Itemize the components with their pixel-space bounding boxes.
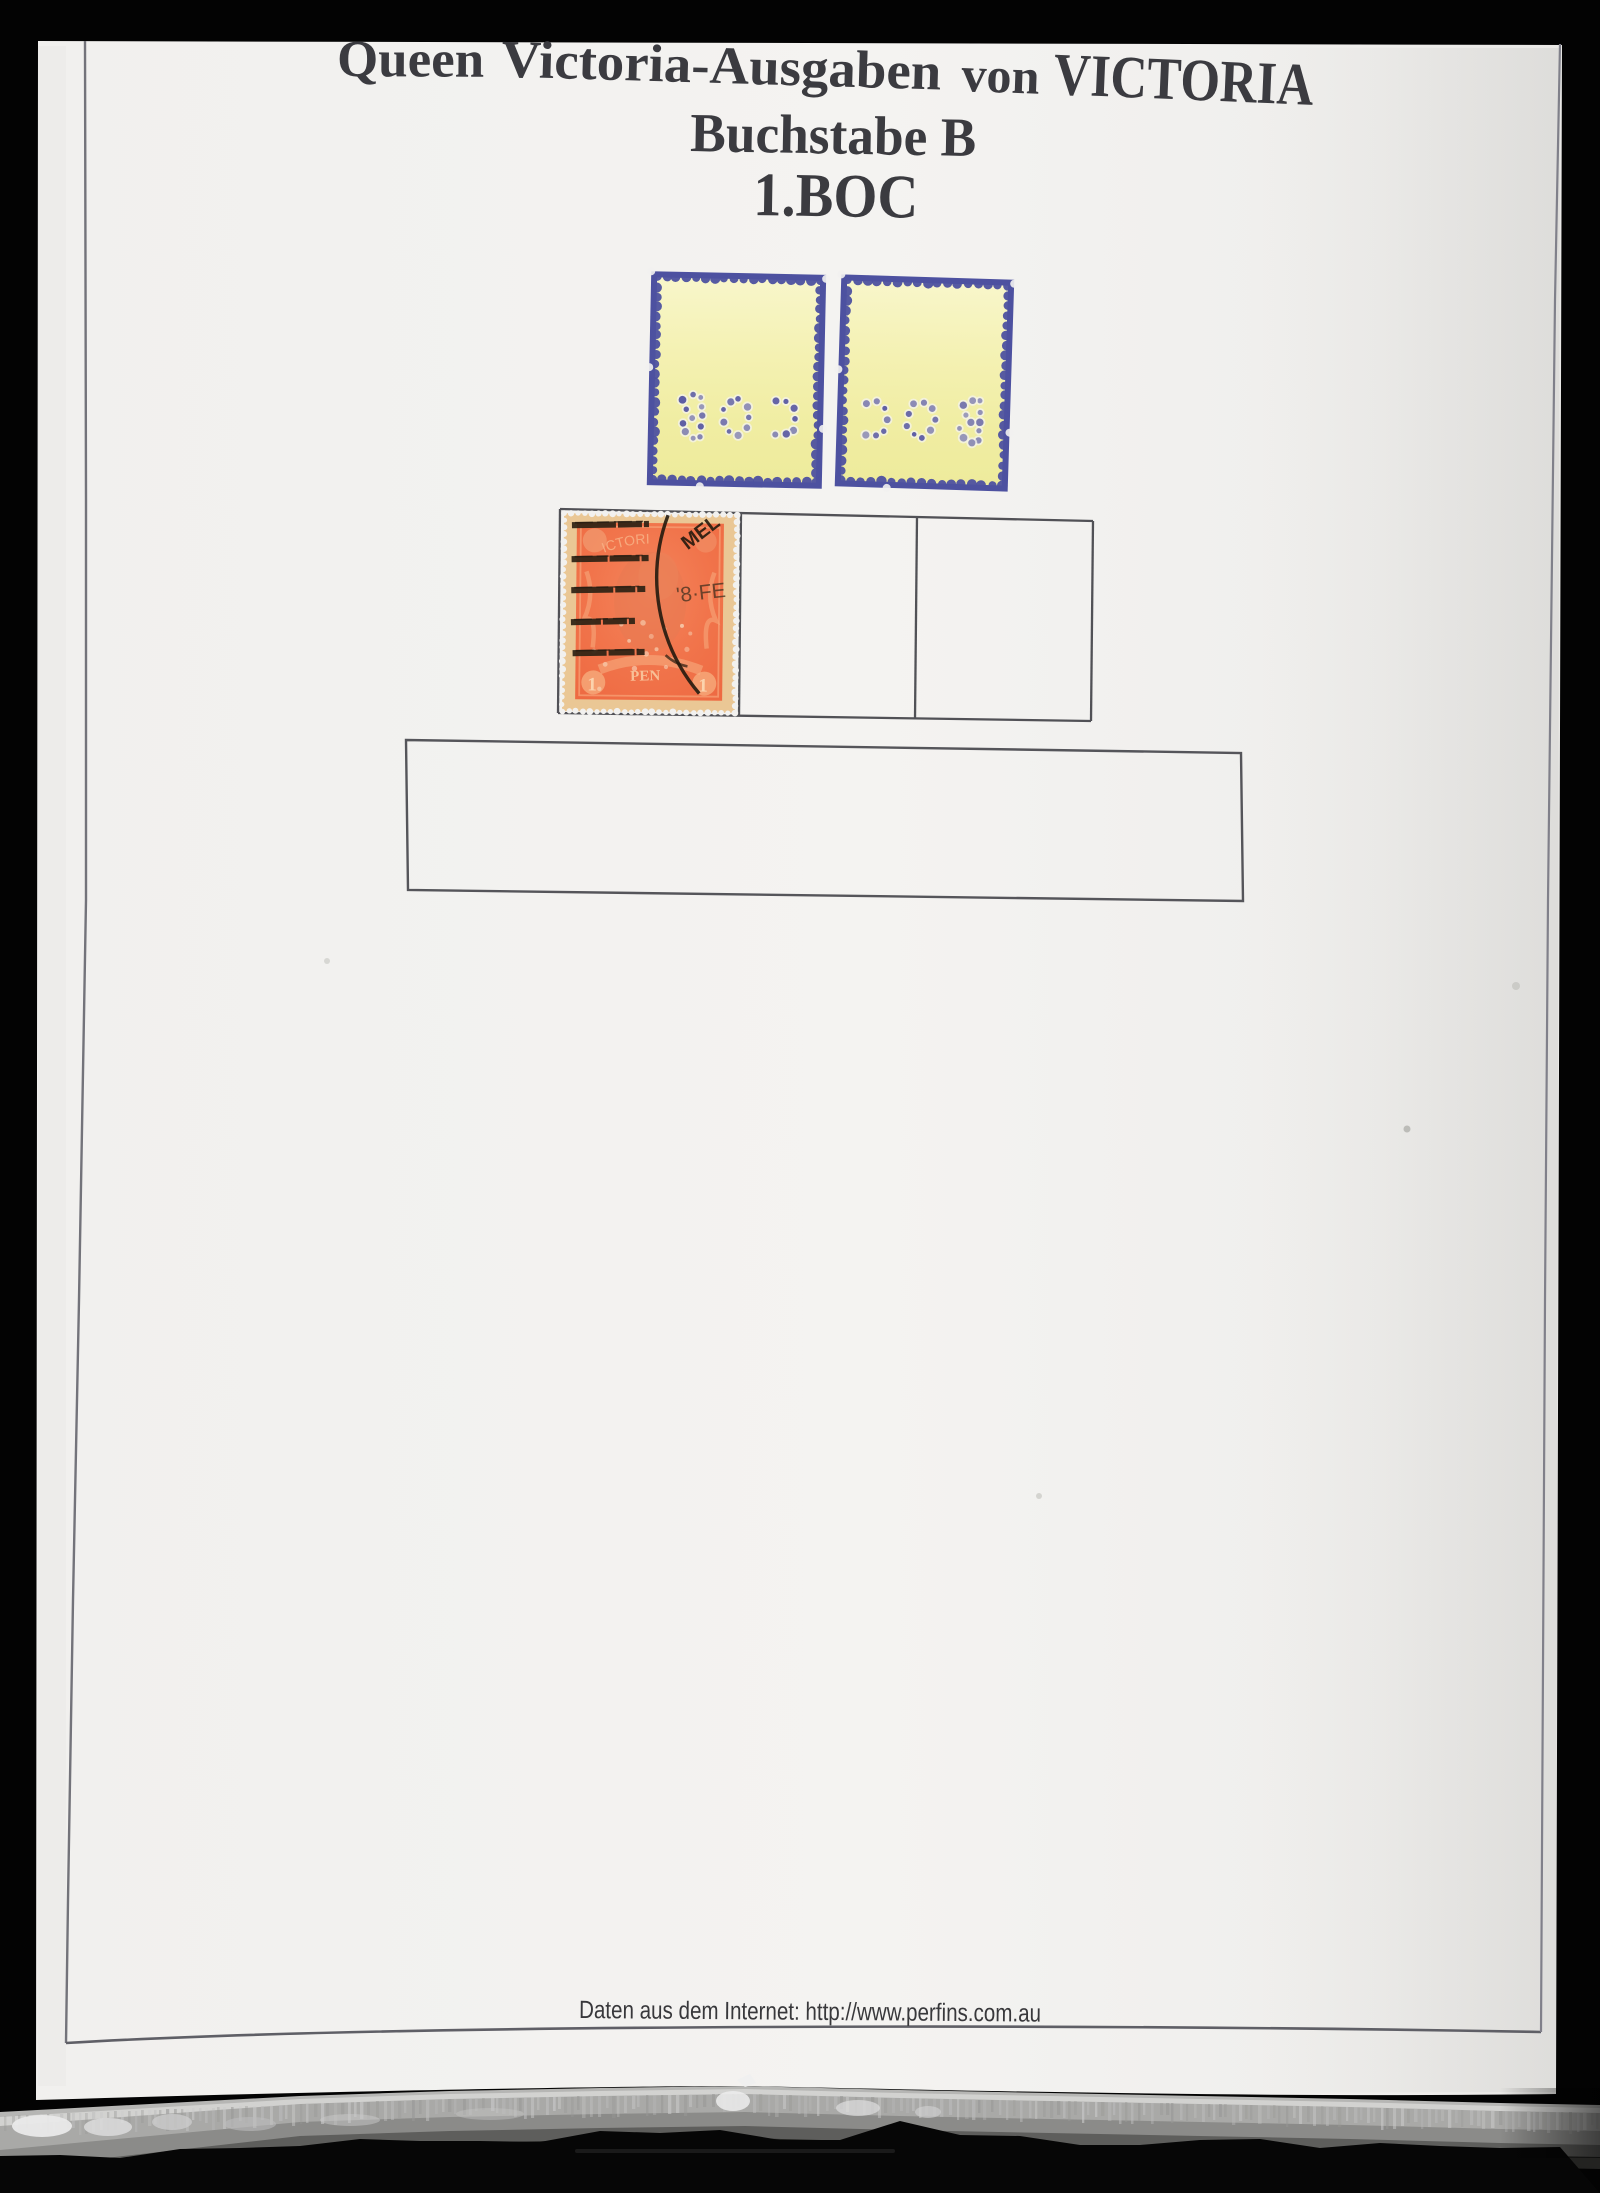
svg-text:1: 1: [587, 674, 597, 695]
svg-text:1.BOC: 1.BOC: [753, 161, 919, 232]
svg-text:Queen: Queen: [337, 31, 484, 89]
svg-text:Daten aus dem Internet: http:/: Daten aus dem Internet: http://www.perfi…: [579, 1996, 1041, 2028]
svg-text:VICTORIA: VICTORIA: [1052, 41, 1315, 118]
svg-text:von: von: [961, 46, 1041, 105]
svg-text:Buchstabe B: Buchstabe B: [690, 102, 977, 168]
svg-text:1: 1: [698, 676, 708, 697]
